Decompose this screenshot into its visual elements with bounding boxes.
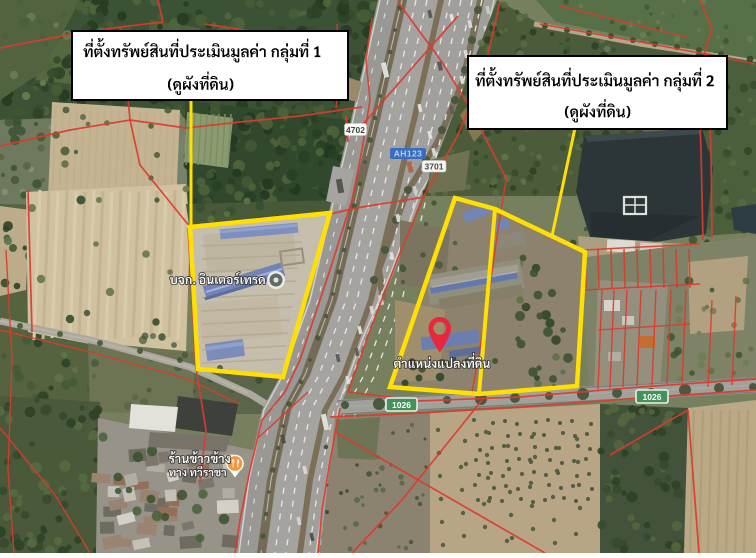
- svg-text:1026: 1026: [392, 400, 411, 410]
- svg-text:AH123: AH123: [394, 149, 422, 159]
- svg-text:4702: 4702: [346, 125, 365, 135]
- svg-text:3701: 3701: [425, 162, 444, 172]
- svg-text:1026: 1026: [643, 392, 662, 402]
